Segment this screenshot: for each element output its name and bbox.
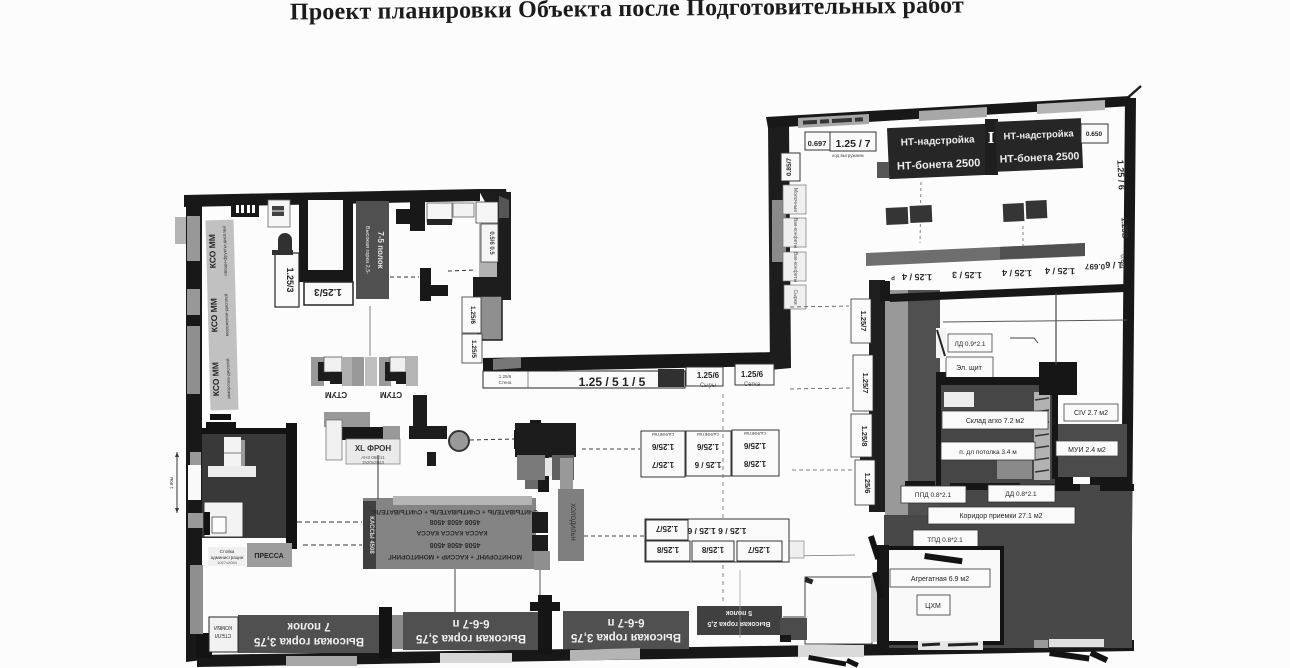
svg-text:1.25 / 4: 1.25 / 4 [902, 272, 932, 283]
svg-text:0.697: 0.697 [1084, 262, 1105, 271]
svg-text:Вак-конфеты: Вак-конфеты [792, 252, 798, 283]
svg-text:1.25 / 4: 1.25 / 4 [1002, 268, 1032, 279]
svg-text:Молочные: Молочные [792, 188, 798, 212]
svg-text:КСО ММ: КСО ММ [209, 298, 220, 332]
svg-text:ППД 0.8*2.1: ППД 0.8*2.1 [915, 492, 952, 499]
svg-text:Стена: Стена [499, 380, 512, 385]
svg-text:4508 4508 4508: 4508 4508 4508 [430, 518, 481, 525]
svg-text:Агрегатная 6.9 м2: Агрегатная 6.9 м2 [911, 576, 969, 583]
svg-text:5 полок: 5 полок [725, 609, 752, 616]
svg-text:I: I [988, 128, 995, 147]
svg-text:1 / 6: 1 / 6 [1105, 260, 1123, 270]
svg-text:КСО ММ: КСО ММ [207, 234, 218, 268]
svg-text:Вак-конфеты: Вак-конфеты [792, 218, 798, 249]
svg-text:ПРЕССА: ПРЕССА [254, 553, 283, 560]
svg-text:1.25/7: 1.25/7 [655, 524, 678, 533]
svg-text:1.25/5: 1.25/5 [470, 340, 477, 358]
svg-text:1.25/6: 1.25/6 [469, 306, 476, 324]
svg-text:Стойка: Стойка [220, 548, 235, 554]
svg-text:Склад агхо 7.2 м2: Склад агхо 7.2 м2 [966, 418, 1024, 425]
svg-text:КАССА КАССА КАССА: КАССА КАССА КАССА [416, 529, 487, 536]
svg-text:Высокая горка 3,75: Высокая горка 3,75 [415, 632, 526, 644]
svg-text:1.80м: 1.80м [169, 477, 174, 489]
svg-text:CIV 2.7 м2: CIV 2.7 м2 [1074, 410, 1108, 417]
svg-text:1.25/7: 1.25/7 [861, 373, 870, 394]
svg-text:4508 4508 4508: 4508 4508 4508 [430, 541, 481, 548]
svg-text:6-6-7 п: 6-6-7 п [452, 617, 489, 629]
svg-text:МОНИТОРИНГ + КАССИР + МОНИТОРИ: МОНИТОРИНГ + КАССИР + МОНИТОРИНГ [388, 553, 522, 560]
svg-text:7 полок: 7 полок [287, 620, 330, 632]
svg-text:Высокая горка 3,75: Высокая горка 3,75 [570, 631, 681, 643]
svg-text:Высокая горка 3,75: Высокая горка 3,75 [253, 635, 364, 647]
svg-text:КСО ММ: КСО ММ [210, 362, 221, 396]
svg-text:р: р [891, 275, 895, 281]
svg-text:1027х2054: 1027х2054 [217, 560, 238, 565]
svg-text:XL ФРОН: XL ФРОН [355, 444, 392, 453]
svg-text:САЛФЕТКИ: САЛФЕТКИ [652, 432, 675, 437]
svg-text:1.25/3: 1.25/3 [285, 267, 295, 292]
svg-text:1.25/7: 1.25/7 [651, 460, 674, 469]
svg-text:1.25/6: 1.25/6 [697, 371, 720, 380]
svg-text:САЛФЕТКИ: САЛФЕТКИ [744, 431, 767, 436]
svg-text:МУИ 2.4 м2: МУИ 2.4 м2 [1068, 447, 1106, 454]
svg-text:1.25/7: 1.25/7 [859, 311, 868, 332]
svg-text:1.25 / 7: 1.25 / 7 [835, 138, 870, 150]
svg-text:0.697: 0.697 [808, 139, 827, 148]
svg-text:СТУМ: СТУМ [380, 390, 402, 399]
svg-text:1.25/8: 1.25/8 [743, 459, 766, 468]
svg-text:1.25/6: 1.25/6 [863, 473, 872, 494]
svg-text:Сыры: Сыры [700, 383, 716, 389]
svg-text:Высокая горка 2,5-: Высокая горка 2,5- [364, 226, 370, 274]
svg-text:САЛФЕТКИ: САЛФЕТКИ [697, 432, 720, 437]
svg-text:КОМБИ: КОМБИ [214, 624, 232, 630]
svg-text:1.25 / 4: 1.25 / 4 [1045, 266, 1075, 277]
svg-text:1.25 / 6 1.25 / 6: 1.25 / 6 1.25 / 6 [687, 526, 746, 536]
svg-text:Сырки: Сырки [792, 290, 798, 305]
svg-text:ТПД 0.8*2.1: ТПД 0.8*2.1 [927, 537, 963, 544]
svg-text:мороженое-дисплей: мороженое-дисплей [222, 293, 229, 336]
svg-text:ЛД 0.9*2.1: ЛД 0.9*2.1 [954, 341, 985, 348]
svg-text:1.25В: 1.25В [1119, 217, 1129, 239]
svg-text:КАССЫ 4508: КАССЫ 4508 [368, 516, 374, 554]
svg-text:0.5/6 0.5: 0.5/6 0.5 [488, 231, 494, 255]
svg-text:1.25 / 5 1 / 5: 1.25 / 5 1 / 5 [579, 375, 646, 389]
svg-text:Эл. щит: Эл. щит [956, 365, 982, 372]
svg-text:1.25 / 3: 1.25 / 3 [952, 270, 982, 281]
svg-text:1.25 / 6: 1.25 / 6 [1115, 160, 1127, 191]
svg-text:ход выгружаем: ход выгружаем [832, 153, 864, 158]
svg-text:СТУМ: СТУМ [325, 390, 347, 399]
svg-text:1.25 / 6: 1.25 / 6 [694, 460, 721, 469]
svg-text:1.25/8: 1.25/8 [860, 426, 869, 447]
svg-text:ЦХМ: ЦХМ [925, 603, 941, 610]
svg-text:6-6-7 п: 6-6-7 п [607, 616, 644, 628]
svg-text:7-5 полок: 7-5 полок [376, 231, 385, 269]
svg-text:ДД 0.8*2.1: ДД 0.8*2.1 [1005, 491, 1037, 498]
svg-text:СТЕЛЛ: СТЕЛЛ [215, 632, 231, 638]
svg-text:1.25/6: 1.25/6 [741, 370, 764, 379]
svg-text:1.25/6: 1.25/6 [743, 441, 766, 450]
svg-text:1.25/6: 1.25/6 [651, 442, 674, 451]
svg-text:1.25/6: 1.25/6 [499, 374, 512, 379]
svg-text:Высокая горка 2,5: Высокая горка 2,5 [707, 620, 770, 627]
svg-text:п. дл потолка 3.4 м: п. дл потолка 3.4 м [959, 449, 1017, 456]
svg-text:1.25/8: 1.25/8 [701, 545, 724, 554]
svg-text:ХОЛОДИЛЬН: ХОЛОДИЛЬН [569, 503, 575, 540]
svg-text:0.650: 0.650 [1086, 131, 1103, 138]
svg-text:Коридор приемки 27.1 м2: Коридор приемки 27.1 м2 [959, 513, 1042, 520]
svg-text:0.85/7: 0.85/7 [786, 158, 793, 176]
svg-text:СЧИТЫВАТЕЛЬ + СЧИТЫВАТЕЛЬ + СЧ: СЧИТЫВАТЕЛЬ + СЧИТЫВАТЕЛЬ + СЧИТЫВАТЕЛЬ [372, 508, 538, 515]
svg-text:1.25/6: 1.25/6 [696, 442, 719, 451]
svg-text:1.25/8: 1.25/8 [656, 545, 679, 554]
svg-text:1520х2043: 1520х2043 [362, 460, 385, 465]
svg-text:1.25/7: 1.25/7 [747, 545, 770, 554]
svg-text:заморозка-дисплей: заморозка-дисплей [224, 358, 231, 399]
svg-text:Сетка: Сетка [744, 382, 761, 388]
svg-text:1.25/3: 1.25/3 [314, 286, 342, 297]
